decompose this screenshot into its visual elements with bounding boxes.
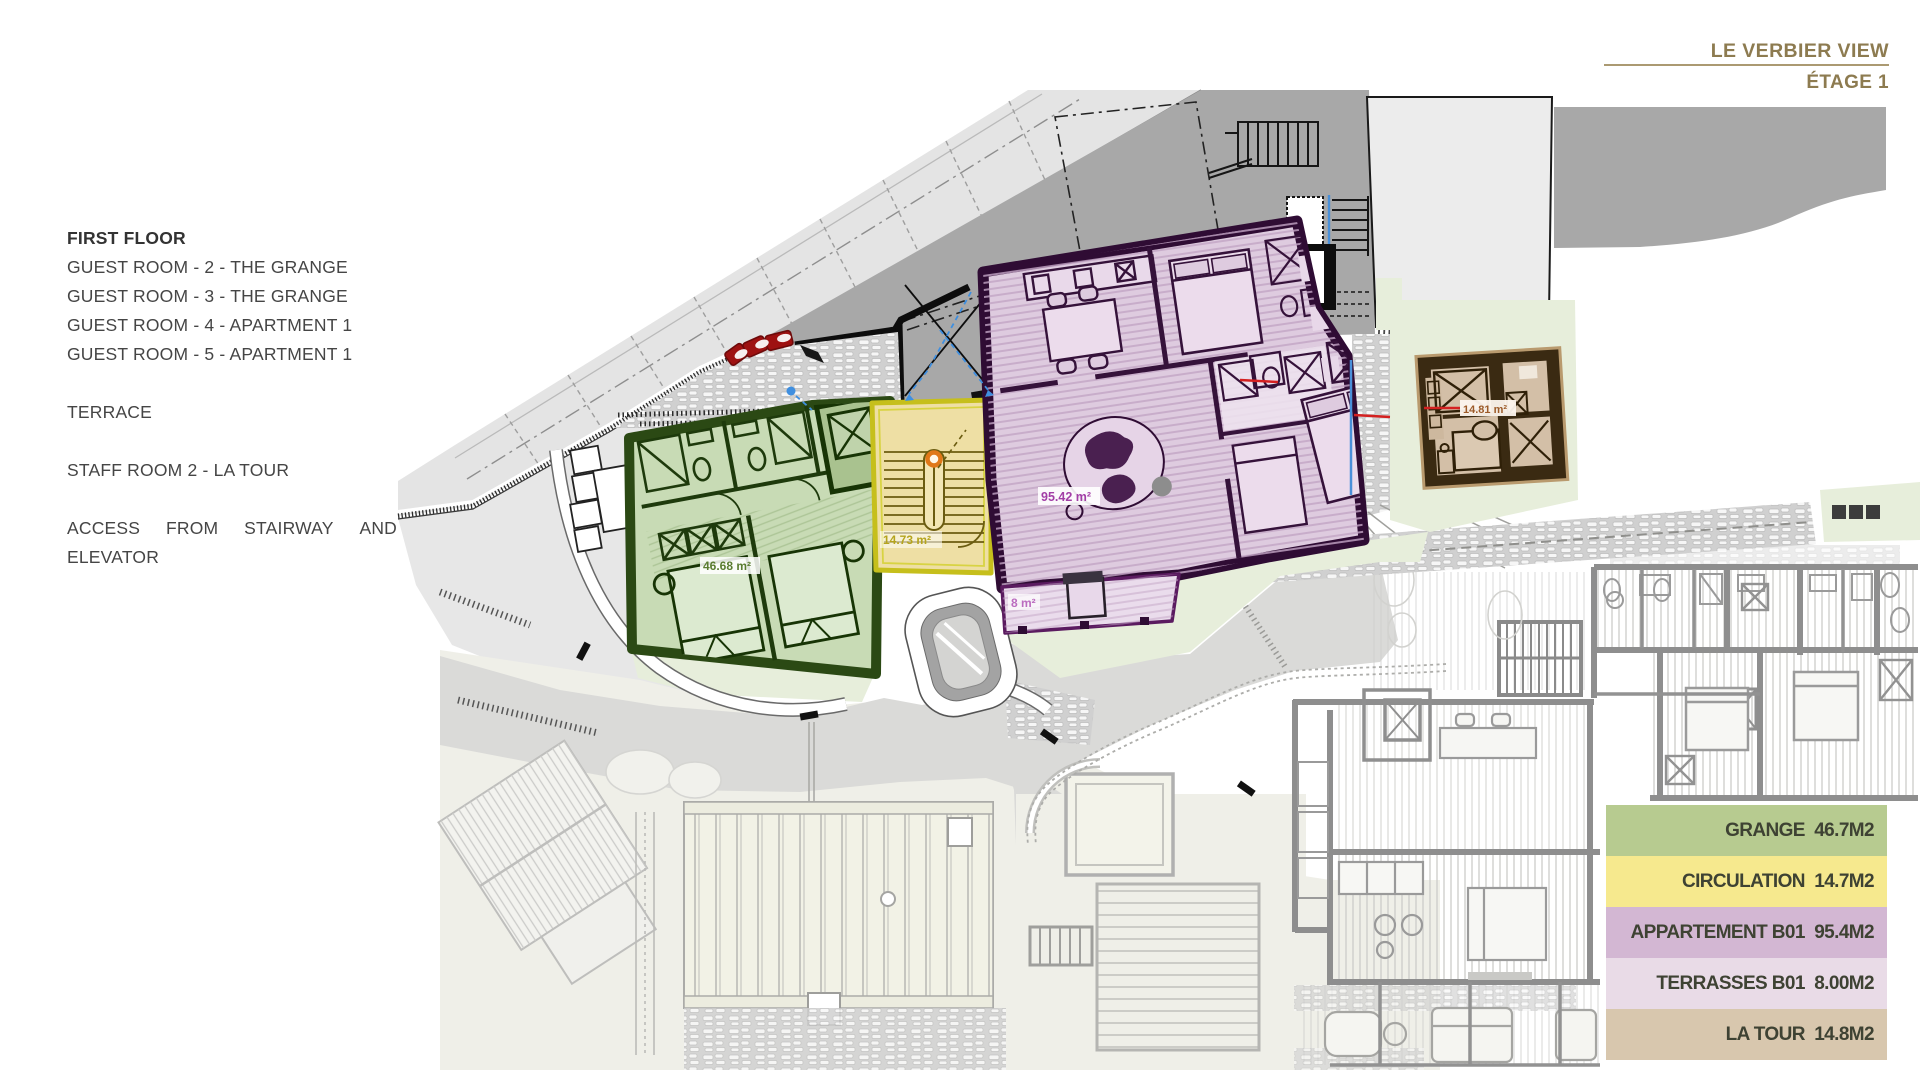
svg-text:8 m²: 8 m² [1011, 596, 1036, 610]
svg-text:46.68 m²: 46.68 m² [703, 559, 751, 573]
svg-text:14.73 m²: 14.73 m² [883, 533, 931, 547]
svg-text:14.81 m²: 14.81 m² [1463, 404, 1507, 416]
svg-text:95.42 m²: 95.42 m² [1041, 490, 1091, 504]
